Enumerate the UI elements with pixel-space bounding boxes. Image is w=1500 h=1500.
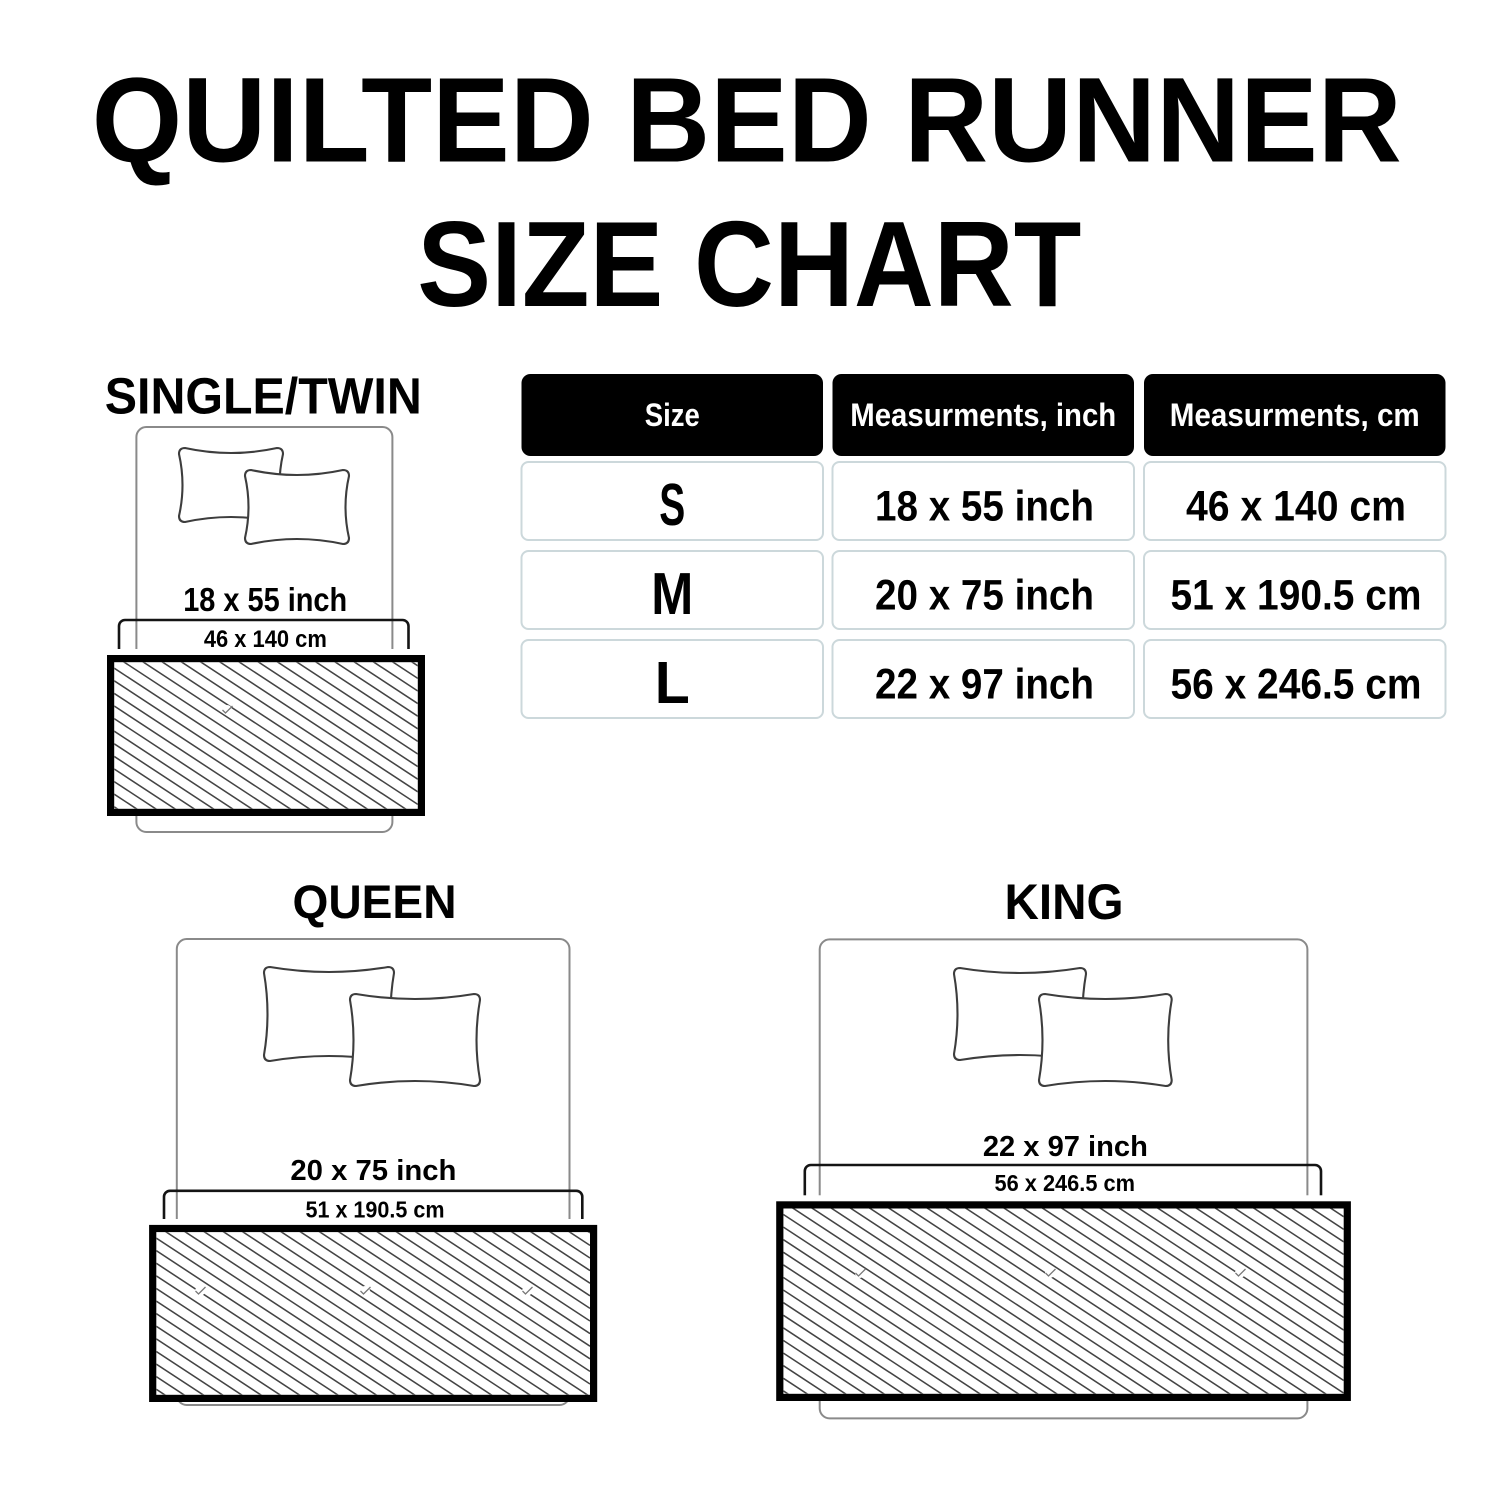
svg-text:KING: KING — [1005, 874, 1124, 930]
svg-text:L: L — [655, 650, 690, 716]
svg-text:QUEEN: QUEEN — [293, 875, 457, 928]
svg-text:56 x 246.5 cm: 56 x 246.5 cm — [1171, 661, 1422, 708]
svg-text:SINGLE/TWIN: SINGLE/TWIN — [105, 368, 422, 425]
svg-text:46 x 140 cm: 46 x 140 cm — [204, 627, 327, 653]
svg-text:18 x 55 inch: 18 x 55 inch — [875, 483, 1094, 530]
svg-text:20 x 75 inch: 20 x 75 inch — [290, 1154, 456, 1186]
svg-text:Size: Size — [645, 397, 700, 433]
svg-text:QUILTED BED RUNNER: QUILTED BED RUNNER — [92, 52, 1402, 188]
svg-text:18 x 55 inch: 18 x 55 inch — [183, 581, 347, 618]
svg-text:S: S — [659, 472, 685, 538]
svg-text:51 x 190.5 cm: 51 x 190.5 cm — [306, 1197, 445, 1223]
svg-text:22 x 97 inch: 22 x 97 inch — [983, 1131, 1148, 1163]
svg-text:20 x 75 inch: 20 x 75 inch — [875, 572, 1094, 619]
svg-text:SIZE CHART: SIZE CHART — [417, 196, 1081, 332]
svg-text:Measurments, cm: Measurments, cm — [1170, 397, 1420, 433]
svg-text:56 x 246.5 cm: 56 x 246.5 cm — [995, 1170, 1136, 1196]
svg-text:M: M — [651, 561, 693, 627]
svg-text:51 x 190.5 cm: 51 x 190.5 cm — [1171, 572, 1422, 619]
svg-text:Measurments, inch: Measurments, inch — [850, 397, 1116, 433]
svg-text:22 x 97 inch: 22 x 97 inch — [875, 661, 1094, 708]
svg-text:46 x 140 cm: 46 x 140 cm — [1186, 483, 1406, 530]
